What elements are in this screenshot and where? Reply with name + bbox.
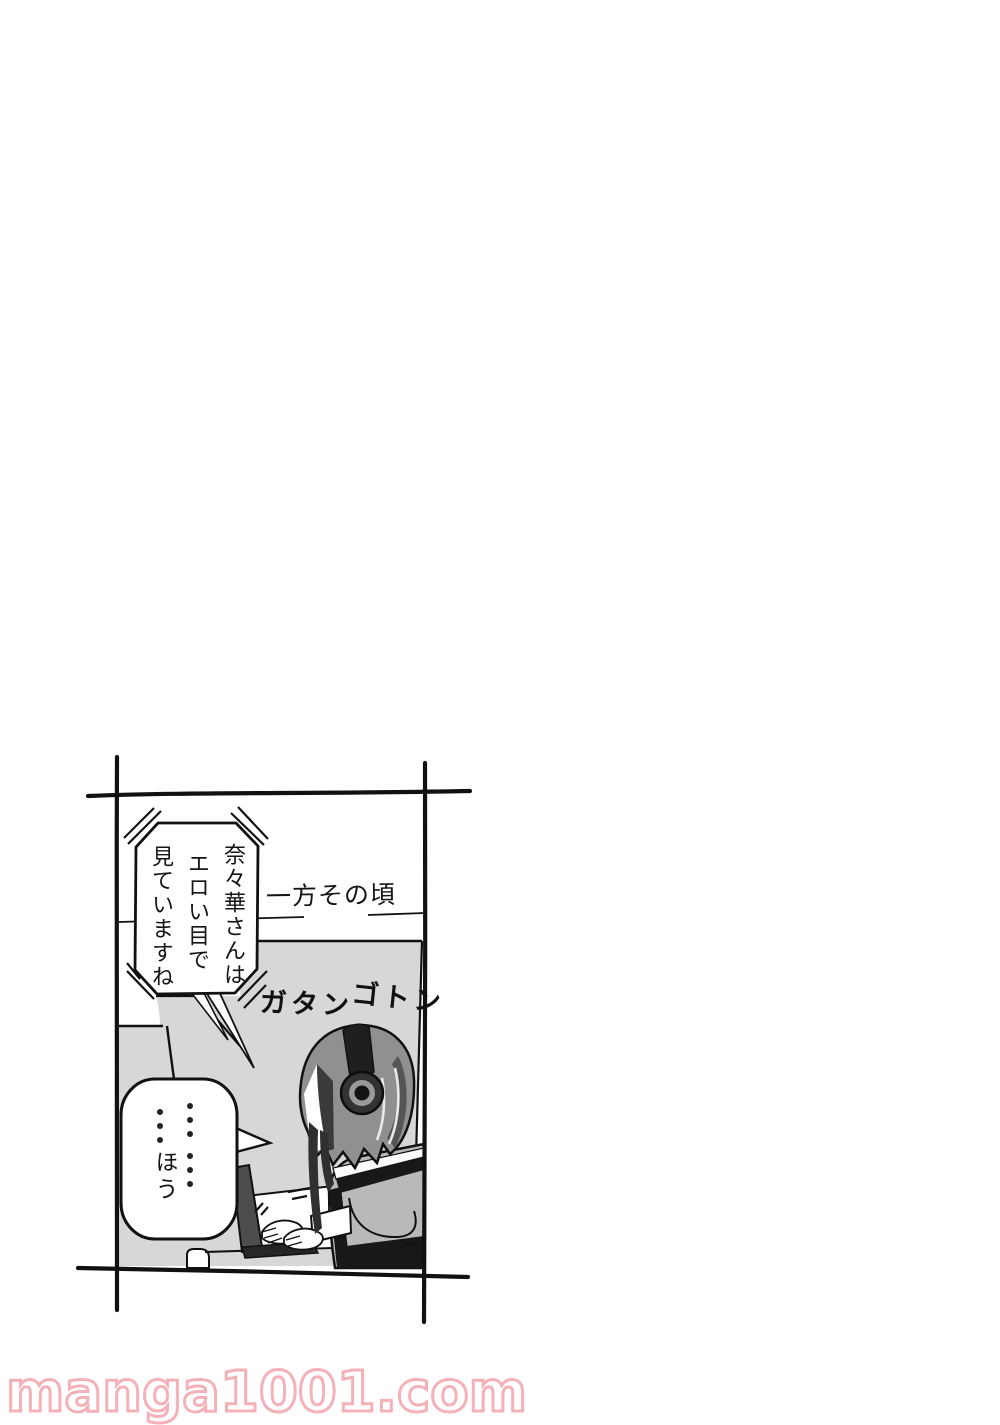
- headphone-earcup-center: [355, 1086, 370, 1101]
- panel-border-bottom: [78, 1268, 468, 1277]
- site-watermark: manga1001.com: [6, 1360, 527, 1425]
- sfx-gatan: ガタン: [259, 980, 353, 1022]
- bubble2-word: ほう: [152, 1150, 175, 1204]
- window-sill-line-right: [368, 913, 425, 915]
- panel-border-right: [424, 763, 425, 1322]
- bubble1-text-col3: 見ていますね: [149, 845, 171, 989]
- bubble1-text-col2: エロい目で: [185, 852, 207, 972]
- scene-caption: 一方その頃: [266, 875, 397, 913]
- panel-border-left: [117, 757, 118, 1310]
- manga-page[interactable]: 一方その頃 ガタン ゴトン 奈々華さんは エロい目で 見ていますね ほう man…: [0, 0, 1000, 1422]
- manga-panel-art: [0, 0, 1000, 1422]
- panel-border-top: [88, 791, 470, 796]
- bubble1-text-col1: 奈々華さんは: [221, 843, 243, 987]
- bubble2-body: [121, 1079, 237, 1239]
